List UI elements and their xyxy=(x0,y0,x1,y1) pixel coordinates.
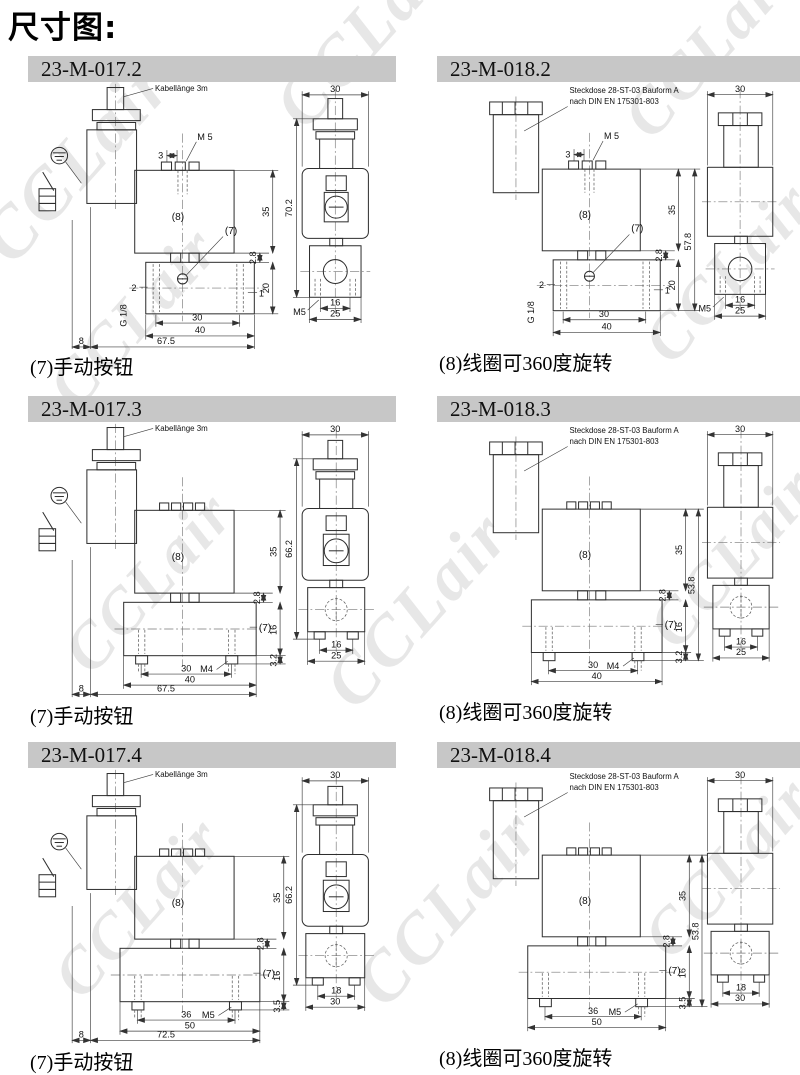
dim-pitch: 3 xyxy=(158,150,163,160)
dim-neck-height: 2.8 xyxy=(658,589,668,602)
dim-front-height: 66.2 xyxy=(284,540,294,558)
dim-front-port-span: 18 xyxy=(736,982,746,992)
coil-ref-label: (8) xyxy=(172,898,184,909)
foot-thread-label: M5 xyxy=(202,1010,215,1020)
dim-overall-height: 53.8 xyxy=(687,577,697,595)
side-view xyxy=(39,84,265,321)
dim-port-span: 30 xyxy=(181,663,191,673)
dim-body-height: 16 xyxy=(272,971,282,981)
dim-front-width: 30 xyxy=(735,424,745,434)
dim-foot-height: 3.5 xyxy=(678,997,688,1010)
dim-front-height: 66.2 xyxy=(284,886,294,904)
dim-foot-height: 3.5 xyxy=(272,1000,282,1013)
connector-type-label: Steckdose 28-ST-03 Bauform A xyxy=(569,426,679,435)
section-23-m-018-2: 23-M-018.2 xyxy=(437,56,800,376)
model-header: 23-M-017.4 xyxy=(28,742,396,768)
dim-front-width: 30 xyxy=(330,770,340,780)
dim-edge-offset: 8 xyxy=(79,1030,84,1040)
side-view xyxy=(39,424,265,674)
dim-overall-width: 67.5 xyxy=(157,336,175,346)
dimension-drawing: Steckdose 28-ST-03 Bauform A nach DIN EN… xyxy=(437,82,800,345)
port-thread-label: G 1/8 xyxy=(526,301,536,323)
dim-neck-height: 2.8 xyxy=(654,249,664,262)
dim-overall-width: 72.5 xyxy=(157,1030,175,1040)
dim-body-width: 40 xyxy=(185,674,195,684)
side-view-dimensions: Steckdose 28-ST-03 Bauform A nach DIN EN… xyxy=(524,426,704,685)
dim-coil-height: 35 xyxy=(667,205,677,215)
dim-front-body-width: 25 xyxy=(330,309,340,319)
dim-body-height: 20 xyxy=(667,280,677,290)
dim-overall-width: 67.5 xyxy=(157,684,175,694)
dimension-drawing: Steckdose 28-ST-03 Bauform A nach DIN EN… xyxy=(437,768,800,1040)
connector-type-label: Steckdose 28-ST-03 Bauform A xyxy=(569,772,679,781)
section-caption: (7)手动按钮 xyxy=(28,351,396,380)
dim-body-height: 16 xyxy=(678,968,688,978)
dim-pitch: 3 xyxy=(565,149,570,159)
dim-front-port-span: 18 xyxy=(331,985,341,995)
page-title: 尺寸图: xyxy=(8,2,117,47)
coil-ref-label: (8) xyxy=(579,550,591,561)
dim-front-body-width: 25 xyxy=(735,305,745,315)
button-ref-label: (7) xyxy=(631,224,643,235)
button-ref-label: (7) xyxy=(225,226,237,237)
connector-standard-label: nach DIN EN 175301-803 xyxy=(569,783,658,792)
dim-body-width: 40 xyxy=(602,322,612,332)
dim-coil-height: 35 xyxy=(261,207,271,217)
coil-ref-label: (8) xyxy=(172,552,184,563)
dim-front-port-span: 16 xyxy=(735,295,745,305)
connector-standard-label: nach DIN EN 175301-803 xyxy=(569,97,658,106)
coil-ref-label: (8) xyxy=(172,212,184,223)
dim-front-width: 30 xyxy=(330,84,340,94)
coil-ref-label: (8) xyxy=(579,210,591,221)
model-header: 23-M-017.2 xyxy=(28,56,396,82)
dim-edge-offset: 8 xyxy=(79,684,84,694)
dim-overall-height: 53.8 xyxy=(690,923,700,941)
section-caption: (8)线圈可360度旋转 xyxy=(437,347,800,376)
dim-port-span: 36 xyxy=(181,1009,191,1019)
dim-foot-height: 3.2 xyxy=(674,651,684,664)
front-view xyxy=(702,775,780,995)
port-number-label: 2 xyxy=(131,283,136,293)
cable-length-label: Kabellänge 3m xyxy=(155,770,208,779)
dim-front-width: 30 xyxy=(330,424,340,434)
dim-overall-height: 57.8 xyxy=(683,233,693,251)
dimension-drawing: Kabellänge 3m (8) (7) 2.8 35 16 3.2 M4 3… xyxy=(28,422,396,698)
dim-coil-height: 35 xyxy=(674,545,684,555)
dim-front-port-span: 16 xyxy=(736,636,746,646)
foot-thread-label: M4 xyxy=(607,661,620,671)
top-thread-label: M 5 xyxy=(197,132,212,142)
dim-front-port-span: 16 xyxy=(330,298,340,308)
coil-ref-label: (8) xyxy=(579,896,591,907)
connector-type-label: Steckdose 28-ST-03 Bauform A xyxy=(569,86,679,95)
cable-length-label: Kabellänge 3m xyxy=(155,84,208,93)
connector-standard-label: nach DIN EN 175301-803 xyxy=(569,437,658,446)
dim-port-span: 36 xyxy=(588,1006,598,1016)
dim-body-width: 50 xyxy=(185,1020,195,1030)
section-caption: (7)手动按钮 xyxy=(28,700,396,729)
dim-body-height: 16 xyxy=(674,622,684,632)
port-number-label: 2 xyxy=(539,280,544,290)
dim-neck-height: 2.8 xyxy=(661,935,671,948)
cable-length-label: Kabellänge 3m xyxy=(155,424,208,433)
dim-front-width: 30 xyxy=(735,770,745,780)
dim-neck-height: 2.8 xyxy=(256,937,266,950)
side-view xyxy=(39,770,269,1020)
top-thread-label: M 5 xyxy=(604,131,619,141)
foot-thread-label: M5 xyxy=(609,1007,622,1017)
dim-front-body-width: 30 xyxy=(330,996,340,1006)
side-view xyxy=(490,97,671,318)
section-caption: (8)线圈可360度旋转 xyxy=(437,1042,800,1071)
section-23-m-017-4: 23-M-017.4 xyxy=(28,742,396,1075)
bottom-thread-label: M5 xyxy=(698,304,711,314)
earth-ground-icon xyxy=(51,147,68,164)
front-view xyxy=(298,429,373,652)
front-view xyxy=(298,775,373,998)
front-view xyxy=(702,89,778,310)
section-23-m-018-4: 23-M-018.4 xyxy=(437,742,800,1071)
model-header: 23-M-018.2 xyxy=(437,56,800,82)
model-header: 23-M-018.3 xyxy=(437,396,800,422)
dim-body-width: 50 xyxy=(592,1017,602,1027)
bottom-thread-label: M5 xyxy=(293,307,306,317)
earth-ground-icon xyxy=(51,833,68,850)
dim-neck-height: 2.8 xyxy=(248,251,258,264)
dim-coil-height: 35 xyxy=(678,891,688,901)
foot-thread-label: M4 xyxy=(200,664,213,674)
dim-edge-offset: 8 xyxy=(79,336,84,346)
dim-neck-height: 2.8 xyxy=(252,591,262,604)
front-view xyxy=(702,429,780,649)
dim-coil-height: 35 xyxy=(272,893,282,903)
dim-front-port-span: 16 xyxy=(331,639,341,649)
dim-coil-height: 35 xyxy=(268,547,278,557)
side-view-dimensions: Steckdose 28-ST-03 Bauform A nach DIN EN… xyxy=(524,86,700,336)
dim-body-width: 40 xyxy=(592,671,602,681)
dim-port-span: 30 xyxy=(599,309,609,319)
section-23-m-017-3: 23-M-017.3 xyxy=(28,396,396,729)
dim-port-span: 30 xyxy=(588,660,598,670)
dim-front-width: 30 xyxy=(735,84,745,94)
side-view-dimensions: Kabellänge 3m 3 M 5 (8) (7) 2 1 G 1/8 30… xyxy=(72,84,278,349)
dim-body-width: 40 xyxy=(195,325,205,335)
section-23-m-018-3: 23-M-018.3 xyxy=(437,396,800,725)
section-caption: (8)线圈可360度旋转 xyxy=(437,696,800,725)
dim-front-body-width: 25 xyxy=(736,647,746,657)
earth-ground-icon xyxy=(51,487,68,504)
dimension-drawing: Kabellänge 3m (8) (7) 2.8 35 16 3.5 M5 3… xyxy=(28,768,396,1044)
model-header: 23-M-017.3 xyxy=(28,396,396,422)
dim-front-height: 70.2 xyxy=(284,199,294,217)
dim-body-height: 16 xyxy=(268,625,278,635)
model-header: 23-M-018.4 xyxy=(437,742,800,768)
dim-port-span: 30 xyxy=(192,312,202,322)
dimension-drawing: Kabellänge 3m 3 M 5 (8) (7) 2 1 G 1/8 30… xyxy=(28,82,396,349)
dimension-drawing: Steckdose 28-ST-03 Bauform A nach DIN EN… xyxy=(437,422,800,694)
dim-front-body-width: 30 xyxy=(735,993,745,1003)
port-thread-label: G 1/8 xyxy=(118,304,128,326)
dim-body-height: 20 xyxy=(261,283,271,293)
dim-foot-height: 3.2 xyxy=(268,654,278,667)
section-caption: (7)手动按钮 xyxy=(28,1046,396,1075)
dim-front-body-width: 25 xyxy=(331,650,341,660)
section-23-m-017-2: 23-M-017.2 xyxy=(28,56,396,380)
side-view-dimensions: Steckdose 28-ST-03 Bauform A nach DIN EN… xyxy=(524,772,707,1031)
front-view xyxy=(300,89,370,313)
